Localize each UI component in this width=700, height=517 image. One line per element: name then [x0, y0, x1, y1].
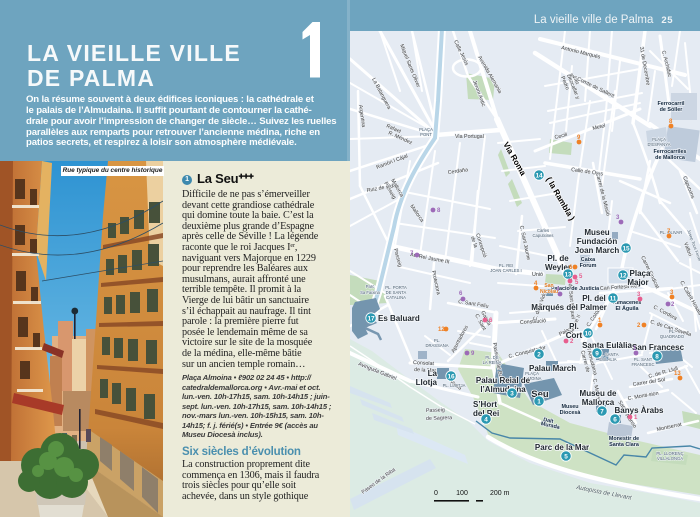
svg-text:Museu: Museu — [584, 228, 609, 237]
svg-text:9: 9 — [595, 350, 599, 357]
svg-text:Plaça: Plaça — [630, 269, 651, 278]
svg-text:D'ESPANYA: D'ESPANYA — [648, 142, 671, 147]
svg-text:5: 5 — [564, 453, 568, 460]
svg-text:Cort: Cort — [566, 331, 583, 340]
svg-text:Santa Eulàlia: Santa Eulàlia — [582, 341, 632, 350]
svg-text:Banys Àrabs: Banys Àrabs — [615, 406, 664, 415]
svg-text:Forum: Forum — [580, 263, 597, 269]
svg-text:LA REINA: LA REINA — [483, 360, 502, 365]
svg-text:Pl.: Pl. — [569, 322, 579, 331]
svg-text:CATALINA: CATALINA — [386, 295, 406, 300]
svg-text:Pl. del: Pl. del — [582, 294, 606, 303]
svg-text:Consolat: Consolat — [413, 360, 435, 367]
svg-text:Major: Major — [627, 278, 648, 287]
svg-text:DRASSANA: DRASSANA — [425, 343, 448, 348]
svg-text:Parc de la Mar: Parc de la Mar — [535, 443, 589, 452]
svg-text:Diocesà: Diocesà — [560, 410, 582, 416]
svg-text:de Sagrera: de Sagrera — [426, 415, 452, 422]
svg-text:Llotja: Llotja — [416, 378, 438, 387]
svg-text:Parc: Parc — [366, 284, 375, 289]
svg-text:200 m: 200 m — [490, 490, 510, 497]
svg-text:JOAN CARLES I: JOAN CARLES I — [490, 268, 521, 273]
svg-text:0: 0 — [434, 490, 438, 497]
svg-text:8: 8 — [655, 353, 659, 360]
svg-text:de Mallorca: de Mallorca — [655, 155, 686, 161]
svg-text:100: 100 — [456, 490, 468, 497]
svg-text:Marqués del Palmer: Marqués del Palmer — [531, 303, 607, 312]
svg-text:3: 3 — [510, 390, 514, 397]
svg-text:2: 2 — [537, 351, 541, 358]
svg-text:Es Baluard: Es Baluard — [378, 314, 420, 323]
svg-text:El Águila: El Águila — [615, 305, 639, 312]
svg-text:PL. LLOTJA: PL. LLOTJA — [443, 383, 466, 388]
svg-text:6: 6 — [613, 416, 617, 423]
svg-text:Unió: Unió — [532, 272, 543, 278]
svg-text:13: 13 — [674, 371, 681, 377]
svg-text:Fundación: Fundación — [577, 237, 618, 246]
svg-text:Santa Clara: Santa Clara — [609, 442, 640, 448]
svg-text:7: 7 — [600, 408, 604, 415]
svg-text:VILLALONGA: VILLALONGA — [657, 456, 683, 461]
svg-text:l’Almudaina: l’Almudaina — [480, 385, 526, 394]
svg-text:Palau Reial de: Palau Reial de — [476, 376, 531, 385]
svg-text:16: 16 — [447, 373, 455, 380]
svg-text:14: 14 — [535, 172, 543, 179]
svg-text:La: La — [428, 369, 438, 378]
svg-text:11: 11 — [610, 295, 617, 302]
svg-text:1: 1 — [537, 398, 541, 405]
svg-text:Via Portugal: Via Portugal — [455, 134, 484, 140]
svg-text:Joan March: Joan March — [575, 246, 620, 255]
svg-text:Caputxines: Caputxines — [533, 233, 554, 238]
svg-text:Museu de: Museu de — [580, 389, 617, 398]
svg-text:Palau March: Palau March — [529, 364, 576, 373]
svg-text:10: 10 — [584, 330, 592, 337]
svg-text:de Sóller: de Sóller — [660, 107, 684, 113]
svg-text:PL. OLIVAR: PL. OLIVAR — [660, 230, 683, 235]
svg-text:13: 13 — [564, 271, 572, 278]
svg-text:12: 12 — [438, 327, 445, 333]
svg-text:QUADRADO: QUADRADO — [660, 334, 685, 339]
svg-text:S’Hort: S’Hort — [473, 400, 497, 409]
svg-text:Passeig: Passeig — [426, 407, 445, 414]
svg-text:EULÀLIA: EULÀLIA — [599, 357, 616, 362]
svg-text:PONT: PONT — [420, 132, 432, 137]
svg-text:Pl. de: Pl. de — [547, 254, 569, 263]
svg-text:Mallorca: Mallorca — [582, 398, 615, 407]
svg-text:Sa Faixina: Sa Faixina — [360, 290, 380, 295]
svg-text:4: 4 — [484, 416, 488, 423]
svg-text:12: 12 — [619, 272, 627, 279]
svg-text:17: 17 — [367, 315, 375, 322]
svg-text:15: 15 — [622, 245, 630, 252]
svg-text:FRANCESC: FRANCESC — [631, 362, 654, 367]
